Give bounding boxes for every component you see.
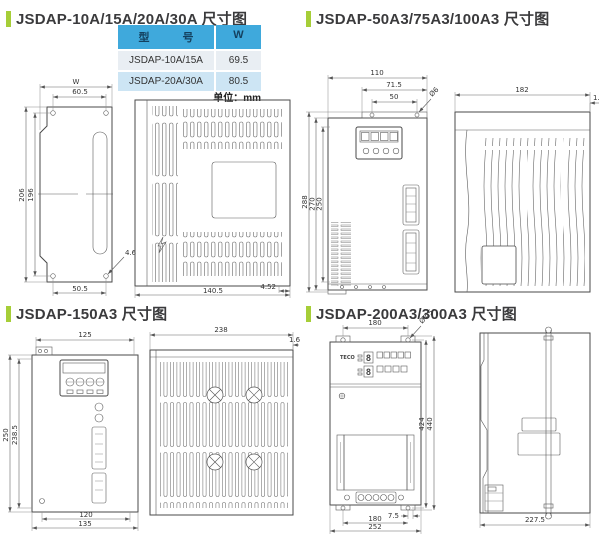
dim-label-bottom-span: 180 <box>368 515 381 523</box>
dim-label-depth: 140.5 <box>203 287 223 295</box>
connector-ports <box>403 185 419 274</box>
brand-logo: TECO <box>340 355 355 361</box>
dim-label-top-span: 60.5 <box>72 88 88 96</box>
side-view-vented: 140.5 4.52 <box>135 100 290 298</box>
seven-segment-digit: 8 <box>366 354 371 364</box>
front-view-drive: 125 250 238.5 120 135 <box>2 331 138 531</box>
dim-label-width: 110 <box>370 69 383 77</box>
catalog-page: JSDAP-10A/15A/20A/30A 尺寸图 JSDAP-50A3/75A… <box>0 0 600 538</box>
dim-label-height-outer: 250 <box>2 428 10 441</box>
mounting-rod <box>544 327 553 519</box>
jsdap-200a3-dimension-drawing: TECO 8 8 <box>300 300 600 538</box>
dim-label-height-outer: 440 <box>426 417 434 430</box>
dim-label-w: W <box>73 78 80 86</box>
jsdap-50a3-dimension-drawing: 110 71.5 50 Ø6 288 270 250 <box>300 0 600 300</box>
dim-label-span-mid: 71.5 <box>386 81 402 89</box>
jsdap-10a-dimension-drawing: W 60.5 206 196 50.5 4.6 <box>0 0 300 300</box>
dim-label-hole: Ø7.5 <box>418 308 435 325</box>
dim-label-bottom-inner: 120 <box>79 511 92 519</box>
dim-label-hole: Ø6 <box>428 85 441 98</box>
dim-label-span-holes: 50 <box>390 93 399 101</box>
display-and-keys: 8 8 <box>358 352 411 378</box>
side-view-vented: 238 1.6 <box>150 326 300 515</box>
front-view-drive: 110 71.5 50 Ø6 288 270 250 <box>301 69 441 294</box>
dim-label-lip: 1.5 <box>593 94 600 102</box>
dim-label-width-top: 125 <box>78 331 91 339</box>
label-plate <box>482 246 516 284</box>
dim-label-height-outer: 206 <box>18 188 26 202</box>
connector-ports <box>92 403 106 503</box>
side-view: 227.5 <box>480 327 590 528</box>
keypad <box>356 127 402 159</box>
dim-label-height-inner: 424 <box>418 417 426 431</box>
front-view-drive: TECO 8 8 <box>330 308 435 534</box>
power-terminals <box>345 492 404 503</box>
dim-label-depth: 227.5 <box>525 516 545 524</box>
vent-strip <box>331 222 351 286</box>
dim-label-height-inner: 196 <box>27 188 35 202</box>
dim-label-bottom-outer: 135 <box>78 520 91 528</box>
label-plate <box>518 433 560 455</box>
dim-label-bottom-span: 50.5 <box>72 285 88 293</box>
dim-label-depth: 238 <box>214 326 227 334</box>
front-view-plate: W 60.5 206 196 50.5 4.6 <box>18 78 137 296</box>
dim-label-height-holes: 250 <box>316 197 324 210</box>
dim-label-lip: 1.6 <box>289 336 300 344</box>
dim-label-depth: 182 <box>515 86 528 94</box>
side-view-vented: 182 1.5 <box>455 86 600 292</box>
seven-segment-digit: 8 <box>366 368 371 378</box>
jsdap-150a3-dimension-drawing: 125 250 238.5 120 135 <box>0 300 300 538</box>
dim-label-bottom-offset: 7.5 <box>388 512 399 520</box>
dim-label-top-span: 180 <box>368 319 381 327</box>
terminal-block <box>60 360 108 396</box>
dim-label-height-inner: 238.5 <box>11 425 19 445</box>
dim-label-bottom-outer: 252 <box>368 523 381 531</box>
dim-label-edge: 4.52 <box>260 283 276 291</box>
